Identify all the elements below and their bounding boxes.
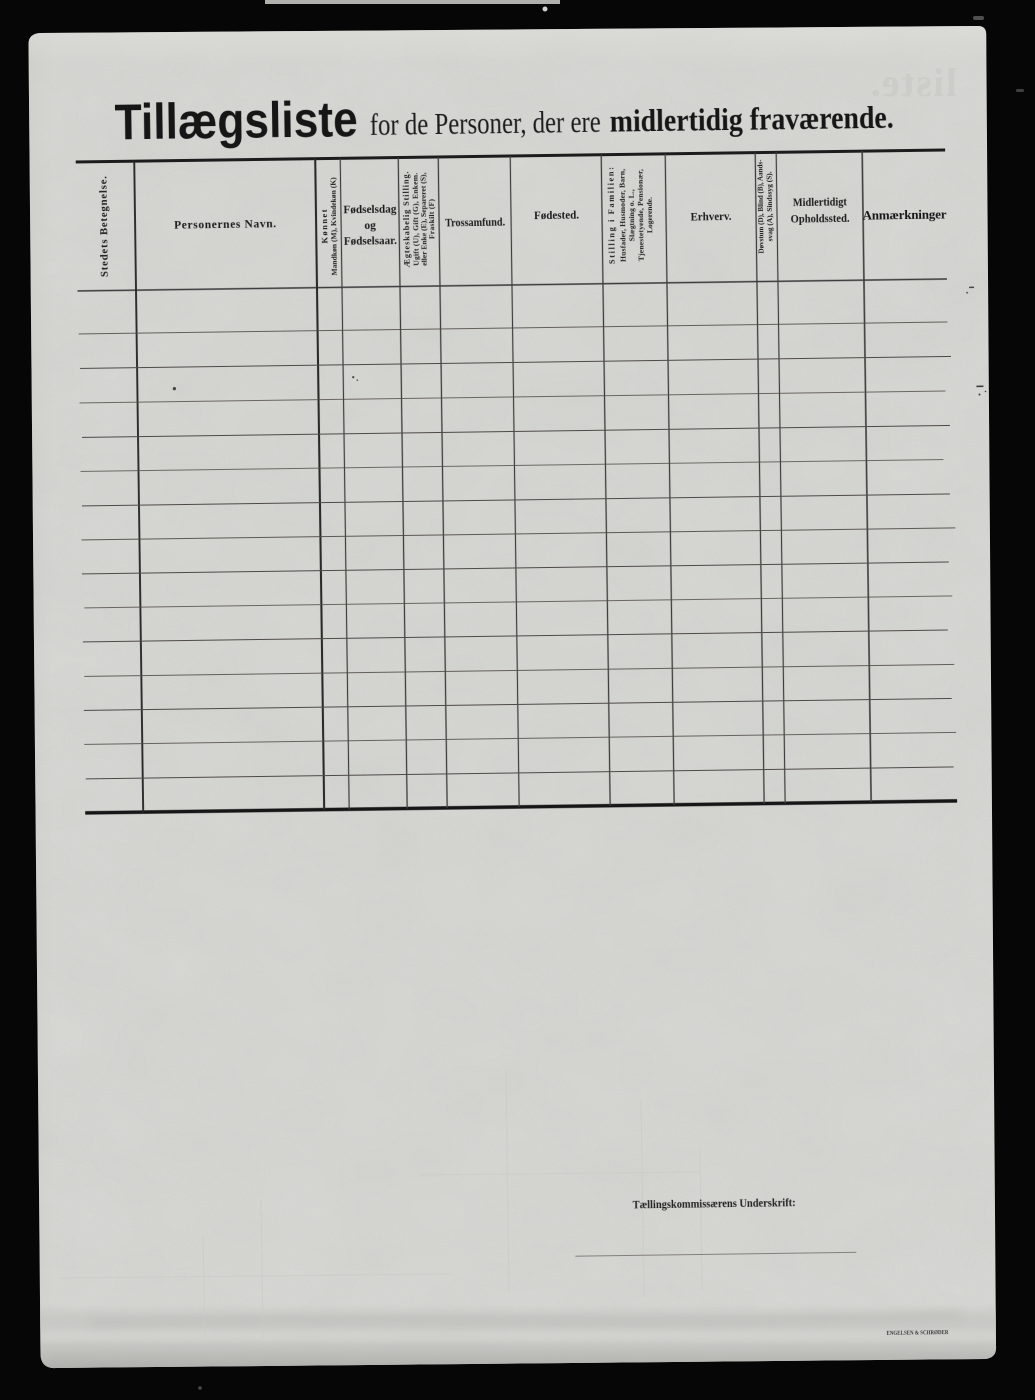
svg-text:midlertidig fraværende.: midlertidig fraværende. bbox=[609, 99, 893, 139]
svg-text:Trossamfund.: Trossamfund. bbox=[445, 217, 505, 230]
svg-text:Logerende.: Logerende. bbox=[645, 197, 654, 233]
svg-text:Erhverv.: Erhverv. bbox=[690, 211, 731, 224]
svg-text:Fraskilt (F): Fraskilt (F) bbox=[427, 199, 437, 240]
svg-text:for de Personer, der ere: for de Personer, der ere bbox=[370, 104, 601, 142]
svg-text:ENGELSEN & SCHRØDER: ENGELSEN & SCHRØDER bbox=[886, 1329, 948, 1337]
svg-text:Personernes Navn.: Personernes Navn. bbox=[174, 218, 276, 231]
svg-text:svag (A), Sindssyg (S).: svag (A), Sindssyg (S). bbox=[764, 171, 774, 241]
svg-text:Tællingskommissærens Underskr: Tællingskommissærens Underskrift: bbox=[633, 1197, 796, 1211]
svg-text:Anmærkninger: Anmærkninger bbox=[862, 206, 946, 222]
svg-text:Fødselsdag: Fødselsdag bbox=[343, 204, 396, 217]
svg-text:og: og bbox=[364, 220, 376, 232]
svg-text:Kønnet: Kønnet bbox=[320, 209, 329, 243]
svg-text:Fødselsaar.: Fødselsaar. bbox=[344, 235, 397, 248]
svg-text:Mandkøn (M), Kvindekøn (K): Mandkøn (M), Kvindekøn (K) bbox=[328, 177, 338, 276]
svg-text:Midlertidigt: Midlertidigt bbox=[793, 196, 847, 209]
svg-text:Opholdssted.: Opholdssted. bbox=[791, 213, 850, 226]
svg-text:Tillægsliste: Tillægsliste bbox=[114, 91, 358, 150]
svg-text:Fødested.: Fødested. bbox=[534, 210, 579, 223]
svg-text:Stedets Betegnelse.: Stedets Betegnelse. bbox=[97, 176, 110, 277]
